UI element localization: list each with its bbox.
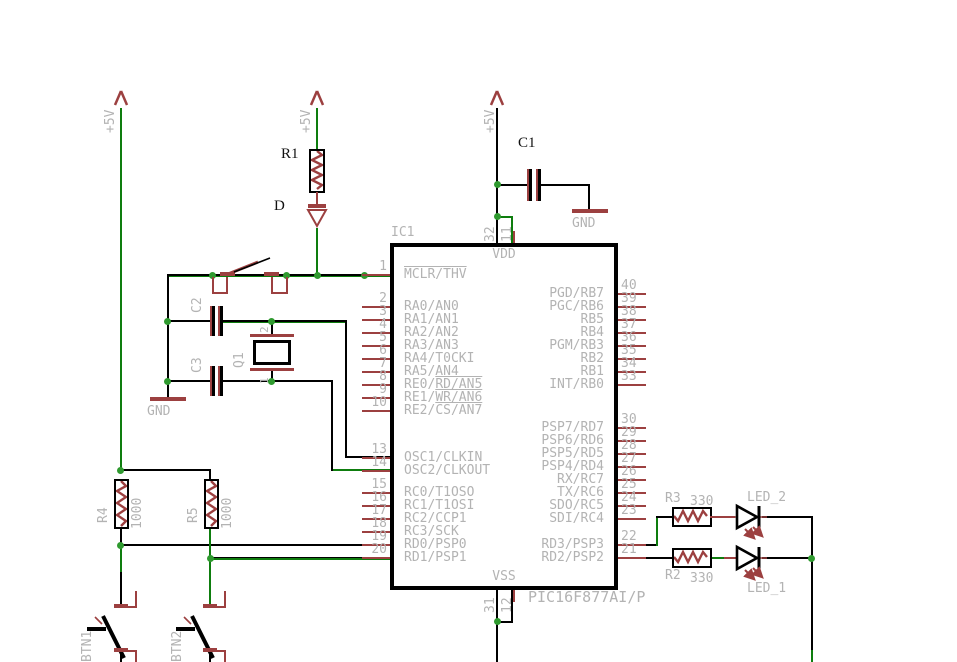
- ic-pin-name-33: INT/RB0: [438, 378, 604, 391]
- wire-v5-r1: [316, 108, 318, 150]
- wire-c1-left: [497, 184, 528, 186]
- r3-value: 330: [690, 495, 713, 508]
- wire-btn1-lower: [120, 572, 122, 605]
- switch-bracket: [271, 277, 288, 294]
- wire-btn1-upper: [120, 546, 122, 572]
- wire-c3-right: [223, 380, 333, 382]
- wire-v5-left: [120, 108, 122, 470]
- btn2-label: BTN2: [171, 631, 184, 662]
- gnd-symbol: [150, 397, 186, 401]
- r5-value: 1000: [221, 498, 234, 529]
- cap-plate: [527, 169, 532, 201]
- junction-dot: [268, 318, 275, 325]
- resistor-zigzag-icon: [674, 509, 709, 524]
- q1-label: Q1: [233, 352, 246, 368]
- ic-pin-name-35: RB2: [438, 352, 604, 365]
- wire-osc1-vert: [345, 321, 347, 458]
- wire-r2-led1-a: [710, 557, 725, 559]
- q1-pin2-label: 2: [259, 326, 270, 333]
- ic-pin-stub-left-10[interactable]: [362, 410, 390, 412]
- ic-pin-number-23: 23: [621, 505, 648, 517]
- ic-pin-number-21: 21: [621, 544, 648, 556]
- gnd-label: GND: [147, 405, 170, 418]
- wire-vdd: [496, 108, 498, 243]
- ic-pin-number-33: 33: [621, 371, 648, 383]
- gnd-symbol: [572, 209, 608, 213]
- junction-dot: [494, 618, 501, 625]
- ic-pin-stub-right-21[interactable]: [618, 557, 646, 559]
- c1-label: C1: [518, 136, 536, 151]
- switch-bracket: [212, 277, 228, 294]
- ic-pin-name-21: RD2/PSP2: [438, 551, 604, 564]
- r3-label: R3: [665, 492, 681, 505]
- crystal-plate: [250, 368, 294, 371]
- ic-pin-name-38: RB5: [438, 313, 604, 326]
- wire-d-mclr: [316, 228, 318, 275]
- ic-pin31-number: 31: [484, 597, 497, 613]
- r5-label: R5: [187, 507, 200, 523]
- ic-pin32-number: 32: [484, 226, 497, 242]
- r2-label: R2: [665, 569, 681, 582]
- cap-plate: [210, 306, 215, 336]
- wire-pin19: [121, 544, 390, 546]
- junction-dot: [494, 213, 501, 220]
- led1-label: LED_1: [747, 582, 786, 595]
- cap-plate: [218, 306, 223, 336]
- wire-r4-r5: [121, 469, 211, 471]
- junction-dot: [164, 378, 171, 385]
- ic-pin-stub-left-1[interactable]: [362, 274, 390, 276]
- btn-hook: [135, 591, 137, 607]
- junction-dot: [117, 542, 124, 549]
- schematic-canvas: +5V +5V +5V: [0, 0, 957, 662]
- ic-pin-name-39: PGC/RB6: [438, 300, 604, 313]
- ic-pin-name-10: RE2/CS/AN7: [404, 404, 482, 417]
- ic-pin-stub-left-14[interactable]: [362, 470, 390, 472]
- resistor-zigzag-icon: [311, 151, 323, 191]
- crystal-body: [253, 340, 291, 365]
- resistor-zigzag-icon: [116, 481, 127, 527]
- vcc-arrow-icon: [308, 90, 326, 108]
- cap-plate: [210, 366, 215, 396]
- ic-pin-stub-right-23[interactable]: [618, 518, 646, 520]
- ic-pin-stub-left-20[interactable]: [362, 557, 390, 559]
- vcc-label: +5V: [104, 110, 117, 133]
- switch-lever-icon: [224, 252, 276, 276]
- btn-stub: [120, 652, 122, 662]
- wire-led-common: [811, 516, 813, 652]
- wire-led-common-tip: [811, 650, 813, 662]
- btn-hook: [224, 591, 226, 607]
- junction-dot: [494, 181, 501, 188]
- ic-vdd-label: VDD: [390, 248, 618, 261]
- junction-dot: [808, 555, 815, 562]
- ic-pin-number-20: 20: [360, 544, 387, 556]
- diode-icon: [306, 202, 328, 228]
- btn1-label: BTN1: [81, 631, 94, 662]
- ic-pin-stub-right-33[interactable]: [618, 384, 646, 386]
- wire-pin22-b: [656, 518, 658, 546]
- wire-c2-net: [223, 322, 347, 323]
- wire-led2-out: [762, 516, 813, 518]
- pin12-stub: [513, 590, 515, 602]
- d-label: D: [274, 199, 285, 214]
- r2-value: 330: [690, 572, 713, 585]
- wire-r5-btn2: [209, 528, 211, 606]
- r3-led2-lead: [710, 516, 735, 518]
- wire-led1-out: [762, 557, 813, 559]
- led2-label: LED_2: [747, 491, 786, 504]
- ic-pin-name-1: MCLR/THV: [404, 268, 467, 281]
- r4-label: R4: [97, 507, 110, 523]
- gnd-label: GND: [572, 217, 595, 230]
- ic-pin-number-14: 14: [360, 457, 387, 469]
- btn-hook: [135, 650, 137, 662]
- pin11-stub: [513, 231, 515, 243]
- resistor-zigzag-icon: [206, 481, 217, 527]
- cap-plate: [218, 366, 223, 396]
- c2-label: C2: [191, 297, 204, 313]
- resistor-zigzag-icon: [674, 550, 709, 565]
- wire-c1-right: [541, 184, 590, 186]
- ic-pin-number-1: 1: [360, 261, 387, 273]
- c3-label: C3: [191, 357, 204, 373]
- led-icon: [733, 503, 769, 547]
- ic-refdes: IC1: [391, 226, 414, 239]
- r4-value: 1000: [131, 498, 144, 529]
- btn-stub: [209, 652, 211, 662]
- btn-hook: [224, 650, 226, 662]
- wire-osc2-vert: [331, 381, 333, 471]
- junction-dot: [164, 318, 171, 325]
- wire-c3-left: [168, 380, 210, 382]
- junction-dot: [207, 555, 214, 562]
- vcc-label: +5V: [300, 110, 313, 133]
- ic-pin-name-23: SDI/RC4: [438, 512, 604, 525]
- cap-plate: [536, 169, 541, 201]
- junction-dot: [314, 272, 321, 279]
- vcc-arrow-icon: [112, 90, 130, 108]
- junction-dot: [117, 467, 124, 474]
- wire-c2-left: [168, 320, 210, 322]
- ic-vss-label: VSS: [390, 570, 618, 583]
- crystal-plate: [250, 334, 294, 337]
- q1-pin1-label: 1: [259, 377, 270, 384]
- r1-label: R1: [281, 147, 299, 162]
- ic-part-number: PIC16F877AI/P: [528, 591, 645, 604]
- wire-pin22-c: [656, 516, 672, 518]
- wire-pin21: [646, 557, 672, 559]
- wire-c1-gnd: [588, 184, 590, 210]
- ic-pin-number-10: 10: [360, 397, 387, 409]
- vcc-arrow-icon: [488, 90, 506, 108]
- ic-pin-name-36: PGM/RB3: [438, 339, 604, 352]
